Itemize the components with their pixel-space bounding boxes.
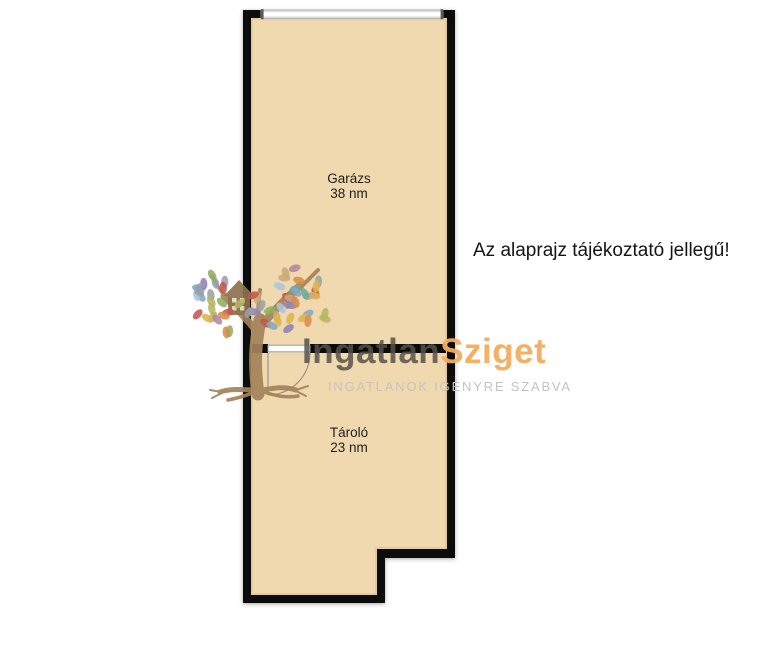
tree-logo-icon (178, 256, 343, 406)
room-area: 38 nm (252, 186, 446, 201)
room-label-garazs: Garázs 38 nm (252, 171, 446, 201)
room-label-tarolo: Tároló 23 nm (252, 425, 446, 455)
brand-ingatlan: Ingatlan (302, 332, 440, 371)
garage-door (261, 9, 443, 19)
brand-tagline: INGATLANOK IGÉNYRE SZABVA (328, 379, 572, 394)
room-name: Garázs (252, 171, 446, 186)
floorplan-drawing (0, 0, 760, 662)
disclaimer-text: Az alaprajz tájékoztató jellegű! (473, 240, 730, 262)
room-name: Tároló (252, 425, 446, 440)
brand-sziget: Sziget (440, 332, 546, 371)
floorplan-image: Garázs 38 nm Tároló 23 nm Az alaprajz tá… (0, 0, 760, 662)
brand-wordmark: IngatlanSziget (302, 334, 546, 369)
room-area: 23 nm (252, 440, 446, 455)
